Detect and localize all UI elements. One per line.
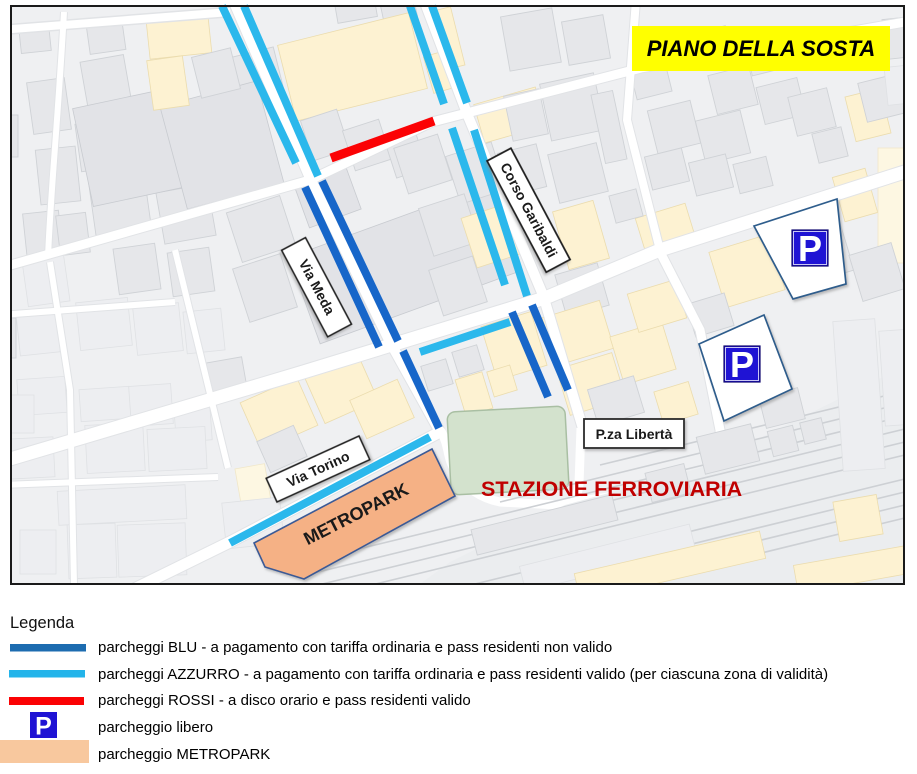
svg-text:PIANO DELLA SOSTA: PIANO DELLA SOSTA (647, 36, 876, 61)
svg-text:parcheggi AZZURRO - a pagament: parcheggi AZZURRO - a pagamento con tari… (98, 666, 828, 683)
svg-text:P: P (798, 228, 822, 269)
svg-text:Legenda: Legenda (10, 614, 75, 632)
svg-text:P.za Libertà: P.za Libertà (596, 426, 673, 442)
svg-text:P: P (730, 344, 754, 385)
svg-text:parcheggi BLU - a pagamento co: parcheggi BLU - a pagamento con tariffa … (98, 639, 612, 656)
svg-text:STAZIONE FERROVIARIA: STAZIONE FERROVIARIA (481, 477, 742, 501)
svg-text:P: P (35, 713, 52, 741)
svg-text:parcheggio libero: parcheggio libero (98, 719, 213, 736)
svg-text:parcheggio METROPARK: parcheggio METROPARK (98, 746, 270, 763)
svg-text:parcheggi ROSSI - a disco orar: parcheggi ROSSI - a disco orario e pass … (98, 692, 471, 709)
